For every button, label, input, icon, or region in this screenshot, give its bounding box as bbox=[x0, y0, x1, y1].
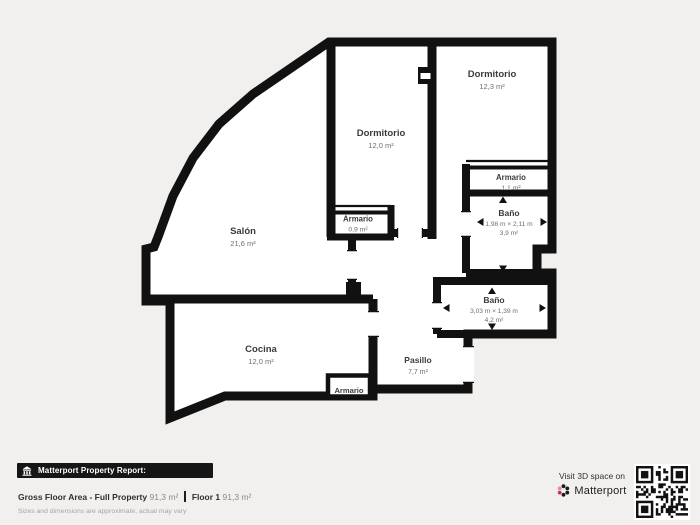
matterport-floorplan-page: Salón 21,6 m² Dormitorio 12,0 m² Dormito… bbox=[0, 0, 700, 525]
disclaimer-text: Sizes and dimensions are approximate, ac… bbox=[18, 508, 187, 515]
matterport-logo-icon bbox=[557, 484, 570, 497]
room-area-pasillo: 7,7 m² bbox=[408, 369, 429, 376]
room-area-cocina: 12,0 m² bbox=[248, 357, 274, 366]
room-label-pasillo: Pasillo bbox=[404, 355, 431, 365]
separator bbox=[184, 491, 186, 502]
report-title-bar: Matterport Property Report: bbox=[17, 463, 213, 478]
visit-caption: Visit 3D space on bbox=[547, 471, 637, 481]
room-label-cocina: Cocina bbox=[245, 344, 277, 355]
gross-floor-area-label: Gross Floor Area - Full Property bbox=[18, 492, 147, 502]
room-label-bano-1: Baño bbox=[498, 208, 519, 218]
room-area-armario-11: 1,1 m² bbox=[501, 185, 521, 192]
gross-floor-area-value: 91,3 m² bbox=[149, 492, 178, 502]
visit-3d-link[interactable]: Visit 3D space on Matterport bbox=[547, 471, 637, 497]
matterport-wordmark: Matterport bbox=[574, 485, 626, 497]
room-label-armario-09: Armario bbox=[343, 215, 373, 224]
room-dims-bano-1: 1,98 m × 2,11 m bbox=[485, 221, 533, 228]
building-icon bbox=[22, 466, 32, 476]
qr-code-canvas bbox=[636, 466, 688, 518]
room-label-salon: Salón bbox=[230, 226, 256, 237]
report-title: Matterport Property Report: bbox=[38, 466, 146, 475]
wall-nub bbox=[346, 282, 361, 298]
room-label-armario-cocina: Armario bbox=[334, 386, 363, 395]
room-dims-bano-2: 3,03 m × 1,39 m bbox=[470, 308, 518, 315]
room-area-bano-1: 3,9 m² bbox=[500, 230, 519, 237]
floor-label: Floor 1 bbox=[192, 492, 220, 502]
floor-value: 91,3 m² bbox=[223, 492, 252, 502]
area-summary: Gross Floor Area - Full Property 91,3 m²… bbox=[18, 491, 251, 502]
room-label-dormitorio-2: Dormitorio bbox=[468, 69, 517, 80]
qr-code bbox=[634, 464, 690, 520]
room-label-dormitorio-1: Dormitorio bbox=[357, 128, 406, 139]
room-label-armario-11: Armario bbox=[496, 173, 526, 182]
room-area-armario-09: 0,9 m² bbox=[348, 227, 368, 234]
floor-plan: Salón 21,6 m² Dormitorio 12,0 m² Dormito… bbox=[0, 0, 700, 460]
wall-recess bbox=[418, 67, 433, 84]
room-label-bano-2: Baño bbox=[483, 295, 504, 305]
room-area-dormitorio-2: 12,3 m² bbox=[479, 82, 505, 91]
room-area-bano-2: 4,2 m² bbox=[485, 317, 504, 324]
room-area-dormitorio-1: 12,0 m² bbox=[368, 141, 394, 150]
room-area-salon: 21,6 m² bbox=[230, 239, 256, 248]
